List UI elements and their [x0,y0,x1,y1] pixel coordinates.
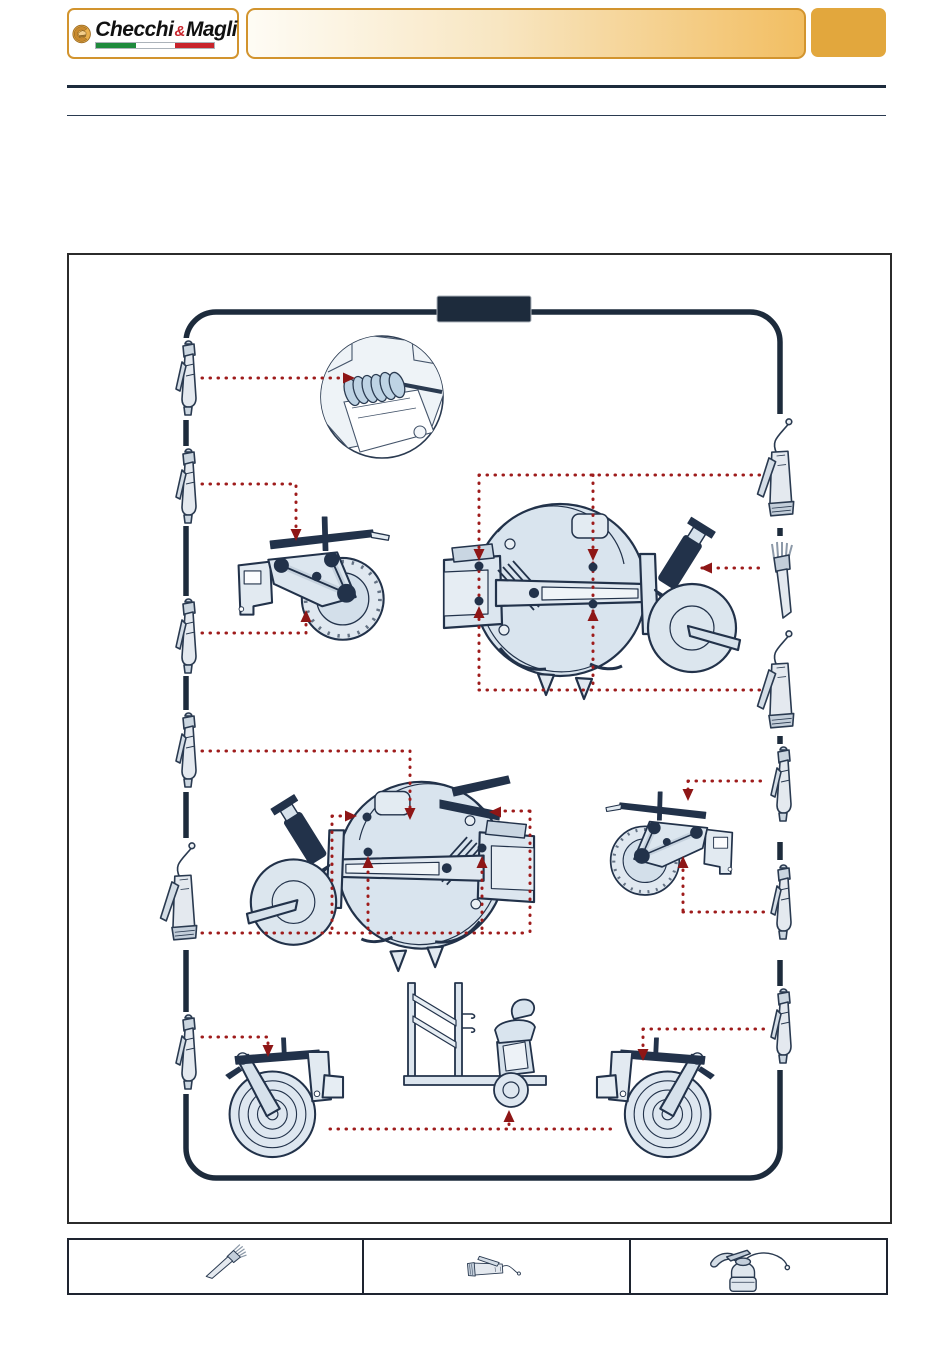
brand-name: Checchi&Magli [95,19,237,40]
press-wheel-unit-left [239,517,390,640]
brand-logo-box: Checchi&Magli [67,8,239,59]
diagram-outer-box [67,253,892,1224]
header-rule-thin [67,115,886,116]
italian-flag-stripe [95,42,215,49]
brand-amp: & [173,23,185,40]
pointer-arrows [263,373,713,1123]
seat-trolley-unit [404,983,546,1107]
legend-cell-oil-can [631,1240,886,1293]
tools-legend [67,1238,888,1295]
press-wheel-unit-right [606,792,732,895]
brand-name-second: Magli [186,18,237,41]
diagram-frame [186,312,780,1178]
brand-emblem-icon [72,12,91,56]
spring-greasing-detail [318,334,448,458]
legend-cell-brush [69,1240,364,1293]
legend-cell-grease-gun [364,1240,631,1293]
lubrication-diagram [69,255,886,1218]
brand-name-first: Checchi [95,18,173,41]
header-banner [246,8,806,59]
tool-icons [161,341,794,1089]
oil-can-icon [684,1238,834,1296]
grease-gun-icon [422,1240,572,1294]
model-label-box [437,296,531,322]
frame-border-masks [177,338,789,1094]
brush-icon [156,1240,276,1294]
header-rule-thick [67,85,886,88]
packer-wheel-unit-right [597,1038,714,1157]
packer-wheel-unit-left [226,1038,343,1157]
lubrication-pointer-lines [202,378,770,1129]
header-page-tab [811,8,886,57]
